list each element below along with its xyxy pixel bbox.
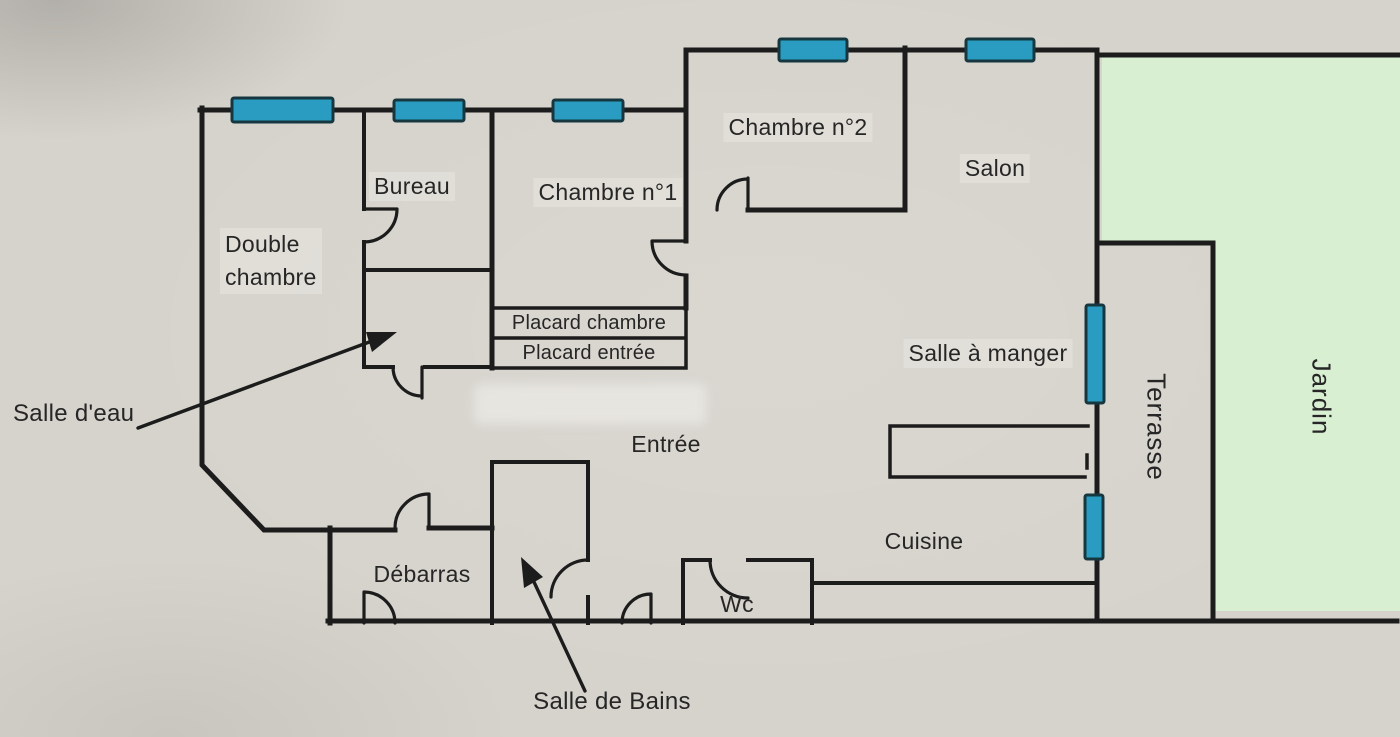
room-label-double-chambre-line2: chambre xyxy=(225,261,317,294)
window-bureau xyxy=(394,100,464,121)
window-chambre1 xyxy=(553,100,623,121)
room-label-debarras: Débarras xyxy=(369,560,476,589)
room-label-cuisine: Cuisine xyxy=(880,527,969,556)
room-label-salle-a-manger: Salle à manger xyxy=(904,339,1073,368)
annotation-label-salle-de-bains: Salle de Bains xyxy=(528,687,696,717)
room-label-chambre2: Chambre n°2 xyxy=(723,113,872,142)
door-chambre2 xyxy=(717,178,748,210)
window-cuisine xyxy=(1085,495,1103,559)
door-salle-de-bains xyxy=(551,560,588,597)
floor-plan-svg xyxy=(0,0,1400,737)
salle-deau-arrow xyxy=(138,341,372,428)
door-salle-deau xyxy=(393,367,422,398)
room-label-bureau: Bureau xyxy=(369,172,455,201)
closet-label-placard-entree: Placard entrée xyxy=(492,338,686,368)
room-label-double-chambre: Double chambre xyxy=(220,228,322,294)
annotation-label-salle-deau: Salle d'eau xyxy=(8,399,139,429)
dining-counter xyxy=(890,426,1088,477)
room-label-chambre1: Chambre n°1 xyxy=(533,178,682,207)
door-debarras-haut xyxy=(395,494,429,528)
door-chambre1 xyxy=(652,241,686,275)
salle-deau-arrowhead xyxy=(366,332,397,352)
salle-de-bains-arrowhead xyxy=(521,557,543,588)
door-bureau xyxy=(364,209,397,242)
room-label-entree: Entrée xyxy=(626,430,706,459)
window-salle-a-manger xyxy=(1086,305,1104,403)
salle-de-bains-arrow xyxy=(534,582,585,691)
door-debarras-bas xyxy=(364,592,395,623)
floor-plan: Double chambre Bureau Chambre n°1 Chambr… xyxy=(0,0,1400,737)
window-double-chambre xyxy=(232,98,333,122)
room-label-salon: Salon xyxy=(960,154,1030,183)
room-label-wc: Wc xyxy=(715,590,759,619)
outdoor-label-terrasse: Terrasse xyxy=(1135,373,1178,481)
window-salon xyxy=(966,39,1034,61)
garden-area xyxy=(1100,55,1400,611)
room-label-double-chambre-line1: Double xyxy=(225,228,317,261)
annotation-arrows xyxy=(138,332,585,691)
outdoor-label-jardin: Jardin xyxy=(1300,359,1343,436)
closet-label-placard-chambre: Placard chambre xyxy=(492,308,686,338)
doors xyxy=(364,178,748,623)
window-chambre2 xyxy=(779,39,847,61)
